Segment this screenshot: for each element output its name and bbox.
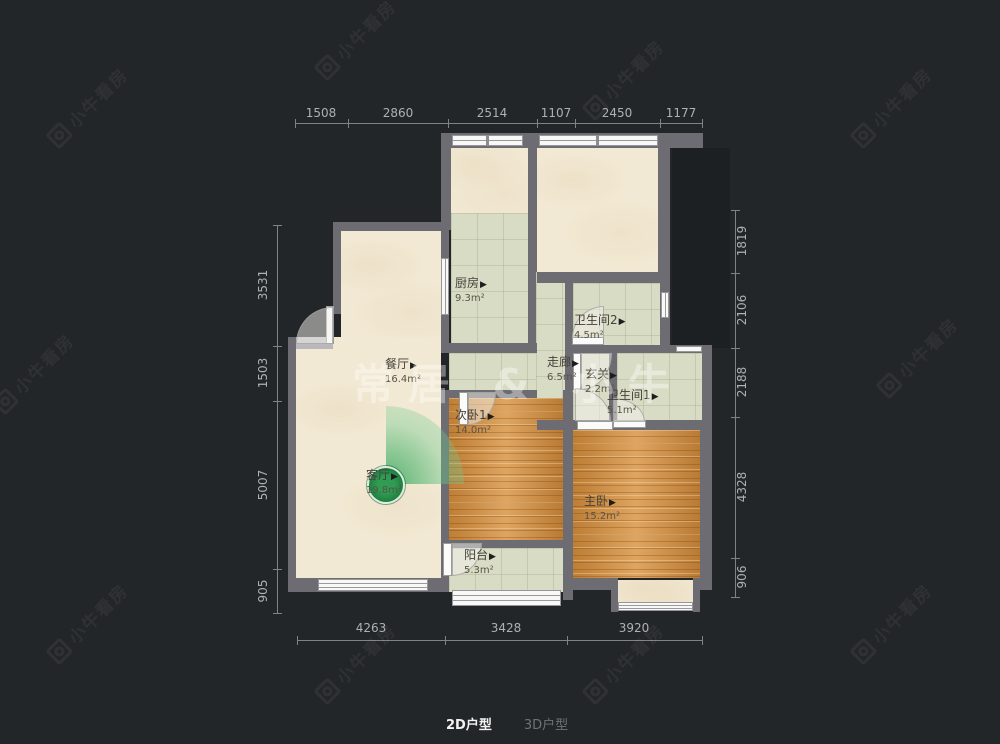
room-area: 14.0m² [455, 424, 495, 437]
brand-watermark-text: 小牛看房 [61, 577, 132, 648]
dim-label: 905 [256, 561, 270, 621]
dim-tick [567, 636, 568, 645]
brand-watermark-text: 小牛看房 [7, 327, 78, 398]
brand-watermark-text: 小牛看房 [865, 577, 936, 648]
window-divider [486, 135, 489, 146]
room-label-kitchen[interactable]: 厨房▶ 9.3m² [455, 276, 487, 305]
kitchen-pass-opening [441, 258, 449, 315]
dim-label: 3428 [476, 621, 536, 635]
dim-tick [537, 119, 538, 128]
wall [333, 222, 341, 314]
dim-label: 906 [735, 547, 749, 607]
camera-icon [45, 637, 73, 665]
dim-tick [731, 348, 740, 349]
camera-icon [875, 371, 903, 399]
void-area [672, 148, 730, 348]
living-room-window [318, 579, 428, 591]
brand-watermark: 小牛看房 [311, 0, 401, 83]
wall [702, 345, 712, 430]
wall [537, 272, 670, 283]
dim-tick [295, 119, 296, 128]
wall [441, 133, 451, 230]
brand-watermark-text: 小牛看房 [597, 33, 668, 104]
camera-icon [849, 637, 877, 665]
dim-label: 1177 [651, 106, 711, 120]
dim-label: 2514 [462, 106, 522, 120]
dim-tick [348, 119, 349, 128]
dim-line [295, 123, 703, 124]
wall [528, 133, 537, 272]
room-label-balcony[interactable]: 阳台▶ 5.3m² [464, 548, 496, 577]
room-label-bath2[interactable]: 卫生间2▶ 4.5m² [574, 313, 626, 342]
dim-label: 3531 [256, 255, 270, 315]
room-link-arrow: ▶ [489, 552, 496, 562]
dim-label: 1503 [256, 343, 270, 403]
room-dining-floor [341, 230, 441, 348]
master-door-leaf [577, 421, 613, 430]
room-link-arrow: ▶ [488, 412, 495, 422]
dim-label: 4263 [341, 621, 401, 635]
wall [563, 390, 573, 600]
dim-tick [702, 636, 703, 645]
room-area: 4.5m² [574, 329, 626, 342]
brand-watermark-text: 小牛看房 [329, 0, 400, 65]
toggle-3d-button[interactable]: 3D户型 [524, 714, 568, 733]
room-label-bath1[interactable]: 卫生间1▶ 5.1m² [607, 388, 659, 417]
brand-watermark: 小牛看房 [43, 577, 133, 667]
room-area: 6.5m² [547, 371, 579, 384]
dim-label: 2106 [735, 280, 749, 340]
dim-label: 3920 [604, 621, 664, 635]
brand-watermark: 小牛看房 [873, 311, 963, 401]
window-divider [596, 135, 599, 146]
room-link-arrow: ▶ [410, 361, 417, 371]
camera-icon [313, 677, 341, 705]
balcony-door-leaf [443, 543, 452, 576]
room-link-arrow: ▶ [572, 359, 579, 369]
room-area: 5.3m² [464, 564, 496, 577]
brand-watermark-text: 小牛看房 [865, 61, 936, 132]
dim-tick [273, 225, 282, 226]
bay-window [618, 602, 693, 611]
dim-tick [702, 119, 703, 128]
camera-icon [581, 677, 609, 705]
dim-label: 1819 [735, 211, 749, 271]
dim-tick [575, 119, 576, 128]
dim-tick [731, 273, 740, 274]
dim-tick [273, 613, 282, 614]
dim-tick [731, 417, 740, 418]
brand-watermark-text: 小牛看房 [61, 61, 132, 132]
window [676, 346, 702, 352]
wall [288, 337, 296, 592]
brand-watermark-text: 小牛看房 [891, 311, 962, 382]
brand-watermark: 小牛看房 [0, 327, 79, 417]
wall [333, 222, 449, 231]
room-name: 卫生间2 [574, 313, 618, 327]
room-name: 厨房 [455, 276, 479, 290]
room-area: 5.1m² [607, 404, 659, 417]
corridor-floor-horizontal [449, 353, 536, 390]
dim-tick [297, 636, 298, 645]
room-area: 19.8m² [366, 484, 402, 497]
room-area: 15.2m² [584, 510, 620, 523]
brand-watermark: 小牛看房 [43, 61, 133, 151]
floorplan-app-canvas: 小牛看房 小牛看房 小牛看房 小牛看房 小牛看房 小牛看房 小牛看房 小牛看房 … [0, 0, 1000, 744]
wall [693, 578, 700, 612]
room-kitchen-bay-floor [451, 141, 528, 216]
window [661, 292, 669, 318]
dim-tick [273, 569, 282, 570]
room-name: 走廊 [547, 355, 571, 369]
entry-door-arc [296, 307, 333, 344]
dim-line [297, 640, 702, 641]
toggle-2d-button[interactable]: 2D户型 [446, 714, 492, 733]
dim-tick [273, 401, 282, 402]
room-label-master[interactable]: 主卧▶ 15.2m² [584, 494, 620, 523]
dim-label: 2188 [735, 352, 749, 412]
dim-label: 2450 [587, 106, 647, 120]
dim-line [277, 225, 278, 613]
room-link-arrow: ▶ [609, 498, 616, 508]
dim-label: 4328 [735, 457, 749, 517]
wall [565, 345, 670, 353]
room-name: 餐厅 [385, 357, 409, 371]
room-name: 客厅 [366, 468, 390, 482]
wall [611, 578, 618, 612]
room-name: 卫生间1 [607, 388, 651, 402]
dim-tick [660, 119, 661, 128]
room-area: 9.3m² [455, 292, 487, 305]
brand-watermark: 小牛看房 [847, 577, 937, 667]
room-name: 阳台 [464, 548, 488, 562]
wall [441, 343, 537, 353]
wall [563, 578, 618, 590]
room-link-arrow: ▶ [610, 371, 617, 381]
dim-tick [448, 119, 449, 128]
room-link-arrow: ▶ [391, 472, 398, 482]
camera-icon [849, 121, 877, 149]
dim-label: 5007 [256, 455, 270, 515]
room-label-dining[interactable]: 餐厅▶ 16.4m² [385, 357, 421, 386]
brand-watermark: 小牛看房 [847, 61, 937, 151]
room-top-right-floor [537, 141, 658, 272]
view-mode-toggle: 2D户型 3D户型 [446, 714, 568, 733]
wall [528, 272, 536, 353]
room-label-corridor[interactable]: 走廊▶ 6.5m² [547, 355, 579, 384]
room-name: 主卧 [584, 494, 608, 508]
dim-label: 1107 [526, 106, 586, 120]
room-label-living[interactable]: 客厅▶ 19.8m² [366, 468, 402, 497]
room-area: 16.4m² [385, 373, 421, 386]
room-name: 次卧1 [455, 408, 487, 422]
camera-icon [313, 53, 341, 81]
room-name: 玄关 [585, 367, 609, 381]
room-label-bedroom2[interactable]: 次卧1▶ 14.0m² [455, 408, 495, 437]
wall [700, 420, 712, 590]
room-link-arrow: ▶ [619, 317, 626, 327]
dim-tick [273, 346, 282, 347]
room-link-arrow: ▶ [652, 392, 659, 402]
dim-label: 1508 [291, 106, 351, 120]
balcony-window [452, 590, 561, 606]
dim-label: 2860 [368, 106, 428, 120]
camera-icon [45, 121, 73, 149]
room-link-arrow: ▶ [480, 280, 487, 290]
camera-icon [0, 387, 19, 415]
dim-tick [445, 636, 446, 645]
wall [658, 133, 670, 283]
